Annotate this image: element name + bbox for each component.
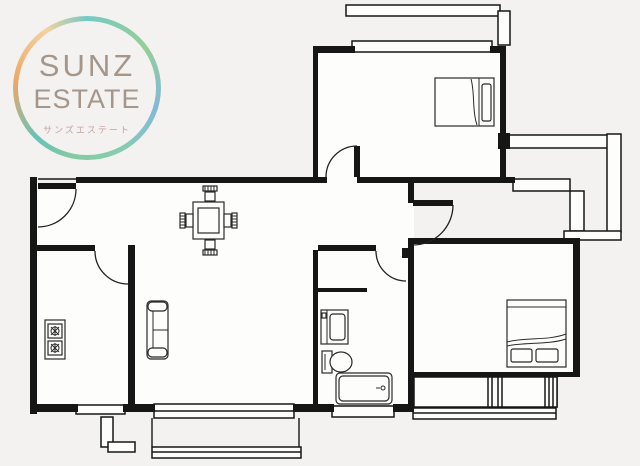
dining-table-top (198, 208, 219, 233)
window-frame (488, 377, 492, 407)
room-hallway (313, 183, 408, 251)
wall-kitchen-right (128, 245, 135, 410)
floorplan-page: SUNZ ESTATE サンズエステート (0, 0, 640, 466)
wall-door-hinge-stub (402, 248, 410, 258)
chair-west-seat (186, 214, 193, 227)
bathroom-window (332, 406, 394, 417)
bed-lower-pillow (536, 349, 558, 362)
door-opening (327, 177, 357, 183)
chair-south-seat (205, 240, 215, 249)
wall-bedroom-upper-right (500, 46, 506, 177)
wall-bottom (293, 404, 322, 412)
logo-text: SUNZ ESTATE サンズエステート (13, 16, 161, 160)
toilet-bowl (330, 352, 352, 372)
balcony-top-outer-window (346, 5, 500, 16)
wall-washroom-top (318, 245, 376, 251)
service-balcony-right-window (607, 134, 621, 232)
logo-subtitle: サンズエステート (43, 123, 131, 136)
wall-bedroom-lower-left (408, 238, 414, 410)
wall-kitchen-top (30, 245, 95, 251)
service-balcony-inner-window (513, 179, 570, 191)
wall-bedroom-upper-left (313, 46, 318, 183)
bed-upper-pillow (482, 84, 491, 121)
wall-bedroom-lower-right (573, 238, 580, 377)
door-opening (376, 245, 404, 251)
wall-bottom (393, 404, 414, 412)
brand-logo: SUNZ ESTATE サンズエステート (13, 16, 161, 160)
bedroom-upper-window (352, 41, 492, 52)
entrance-door-leaf (38, 183, 76, 189)
window-frame (498, 377, 502, 407)
bed-lower (507, 300, 566, 367)
door-opening (408, 203, 414, 238)
stove (45, 320, 65, 359)
logo-title-line2: ESTATE (33, 81, 140, 117)
bed-lower-pillow (511, 349, 532, 362)
washbasin (321, 310, 348, 344)
chair-north-seat (205, 192, 215, 201)
service-balcony-top-window (505, 135, 611, 148)
wall-washroom-divider (318, 288, 367, 292)
wall-corner-block (498, 133, 510, 149)
kitchen-window (76, 405, 125, 414)
wall-bedroom-lower-top (412, 238, 580, 244)
chair-west-back (180, 213, 185, 228)
bathtub (336, 373, 392, 404)
chair-east-back (232, 213, 237, 228)
logo-title-line1: SUNZ (39, 50, 135, 81)
balcony-top-post (498, 11, 510, 45)
door-opening (95, 245, 128, 251)
wall-left-outer (30, 177, 37, 414)
washbasin-tap (322, 313, 326, 318)
sofa (147, 301, 168, 359)
wall-bottom (123, 404, 155, 412)
wall-bottom (318, 404, 334, 412)
service-balcony-side-window (570, 191, 584, 231)
wall-main-top (357, 177, 515, 183)
sofa-armrest-bottom (148, 348, 167, 357)
toilet (322, 351, 352, 373)
wall-main-top (76, 177, 327, 183)
wall-bedroom-upper-top (313, 46, 355, 53)
bedroom-upper-door-leaf (354, 146, 360, 177)
window-frame (545, 377, 549, 407)
bedroom-lower-door-leaf (413, 200, 453, 206)
wall-bedroom-lower-bottom (412, 372, 580, 377)
wall-bottom (30, 404, 78, 412)
sofa-armrest-top (148, 302, 167, 311)
bedroom-lower-window-band (414, 377, 557, 407)
window-frame (553, 377, 557, 407)
washbasin-bowl (330, 314, 345, 340)
wall-washroom-left (313, 250, 318, 410)
chair-east-seat (224, 214, 231, 227)
room-living-dining (36, 183, 313, 404)
bed-upper (435, 78, 494, 126)
utility-corner-horizontal (108, 442, 135, 452)
